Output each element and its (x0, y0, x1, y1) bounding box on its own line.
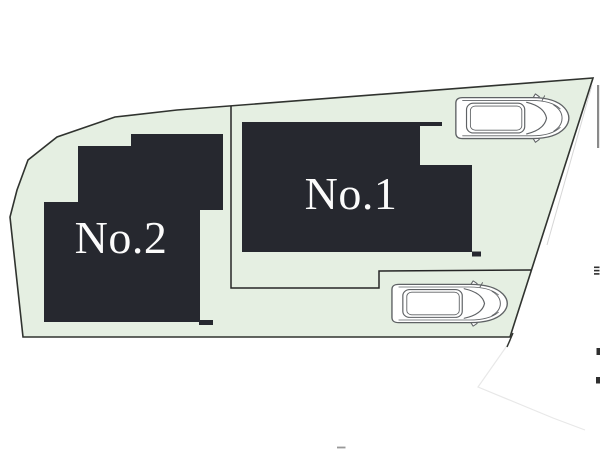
building-no1-step (472, 252, 481, 257)
car-icon-north (456, 94, 569, 142)
edge-mark-a (597, 348, 600, 355)
site-plan-canvas: No.1 No.2 (0, 0, 600, 449)
car-icon-south (392, 281, 507, 326)
site-plan: No.1 No.2 (0, 0, 600, 449)
edge-mark-dashes (594, 267, 600, 275)
bottom-edge-dash (337, 447, 346, 449)
faint-road-line (478, 340, 585, 430)
lot-label-no2: No.2 (75, 212, 168, 263)
lot-label-no1: No.1 (305, 168, 398, 219)
edge-mark-b (596, 377, 600, 384)
edge-gray-line (597, 85, 599, 148)
building-no2-step (199, 320, 213, 325)
